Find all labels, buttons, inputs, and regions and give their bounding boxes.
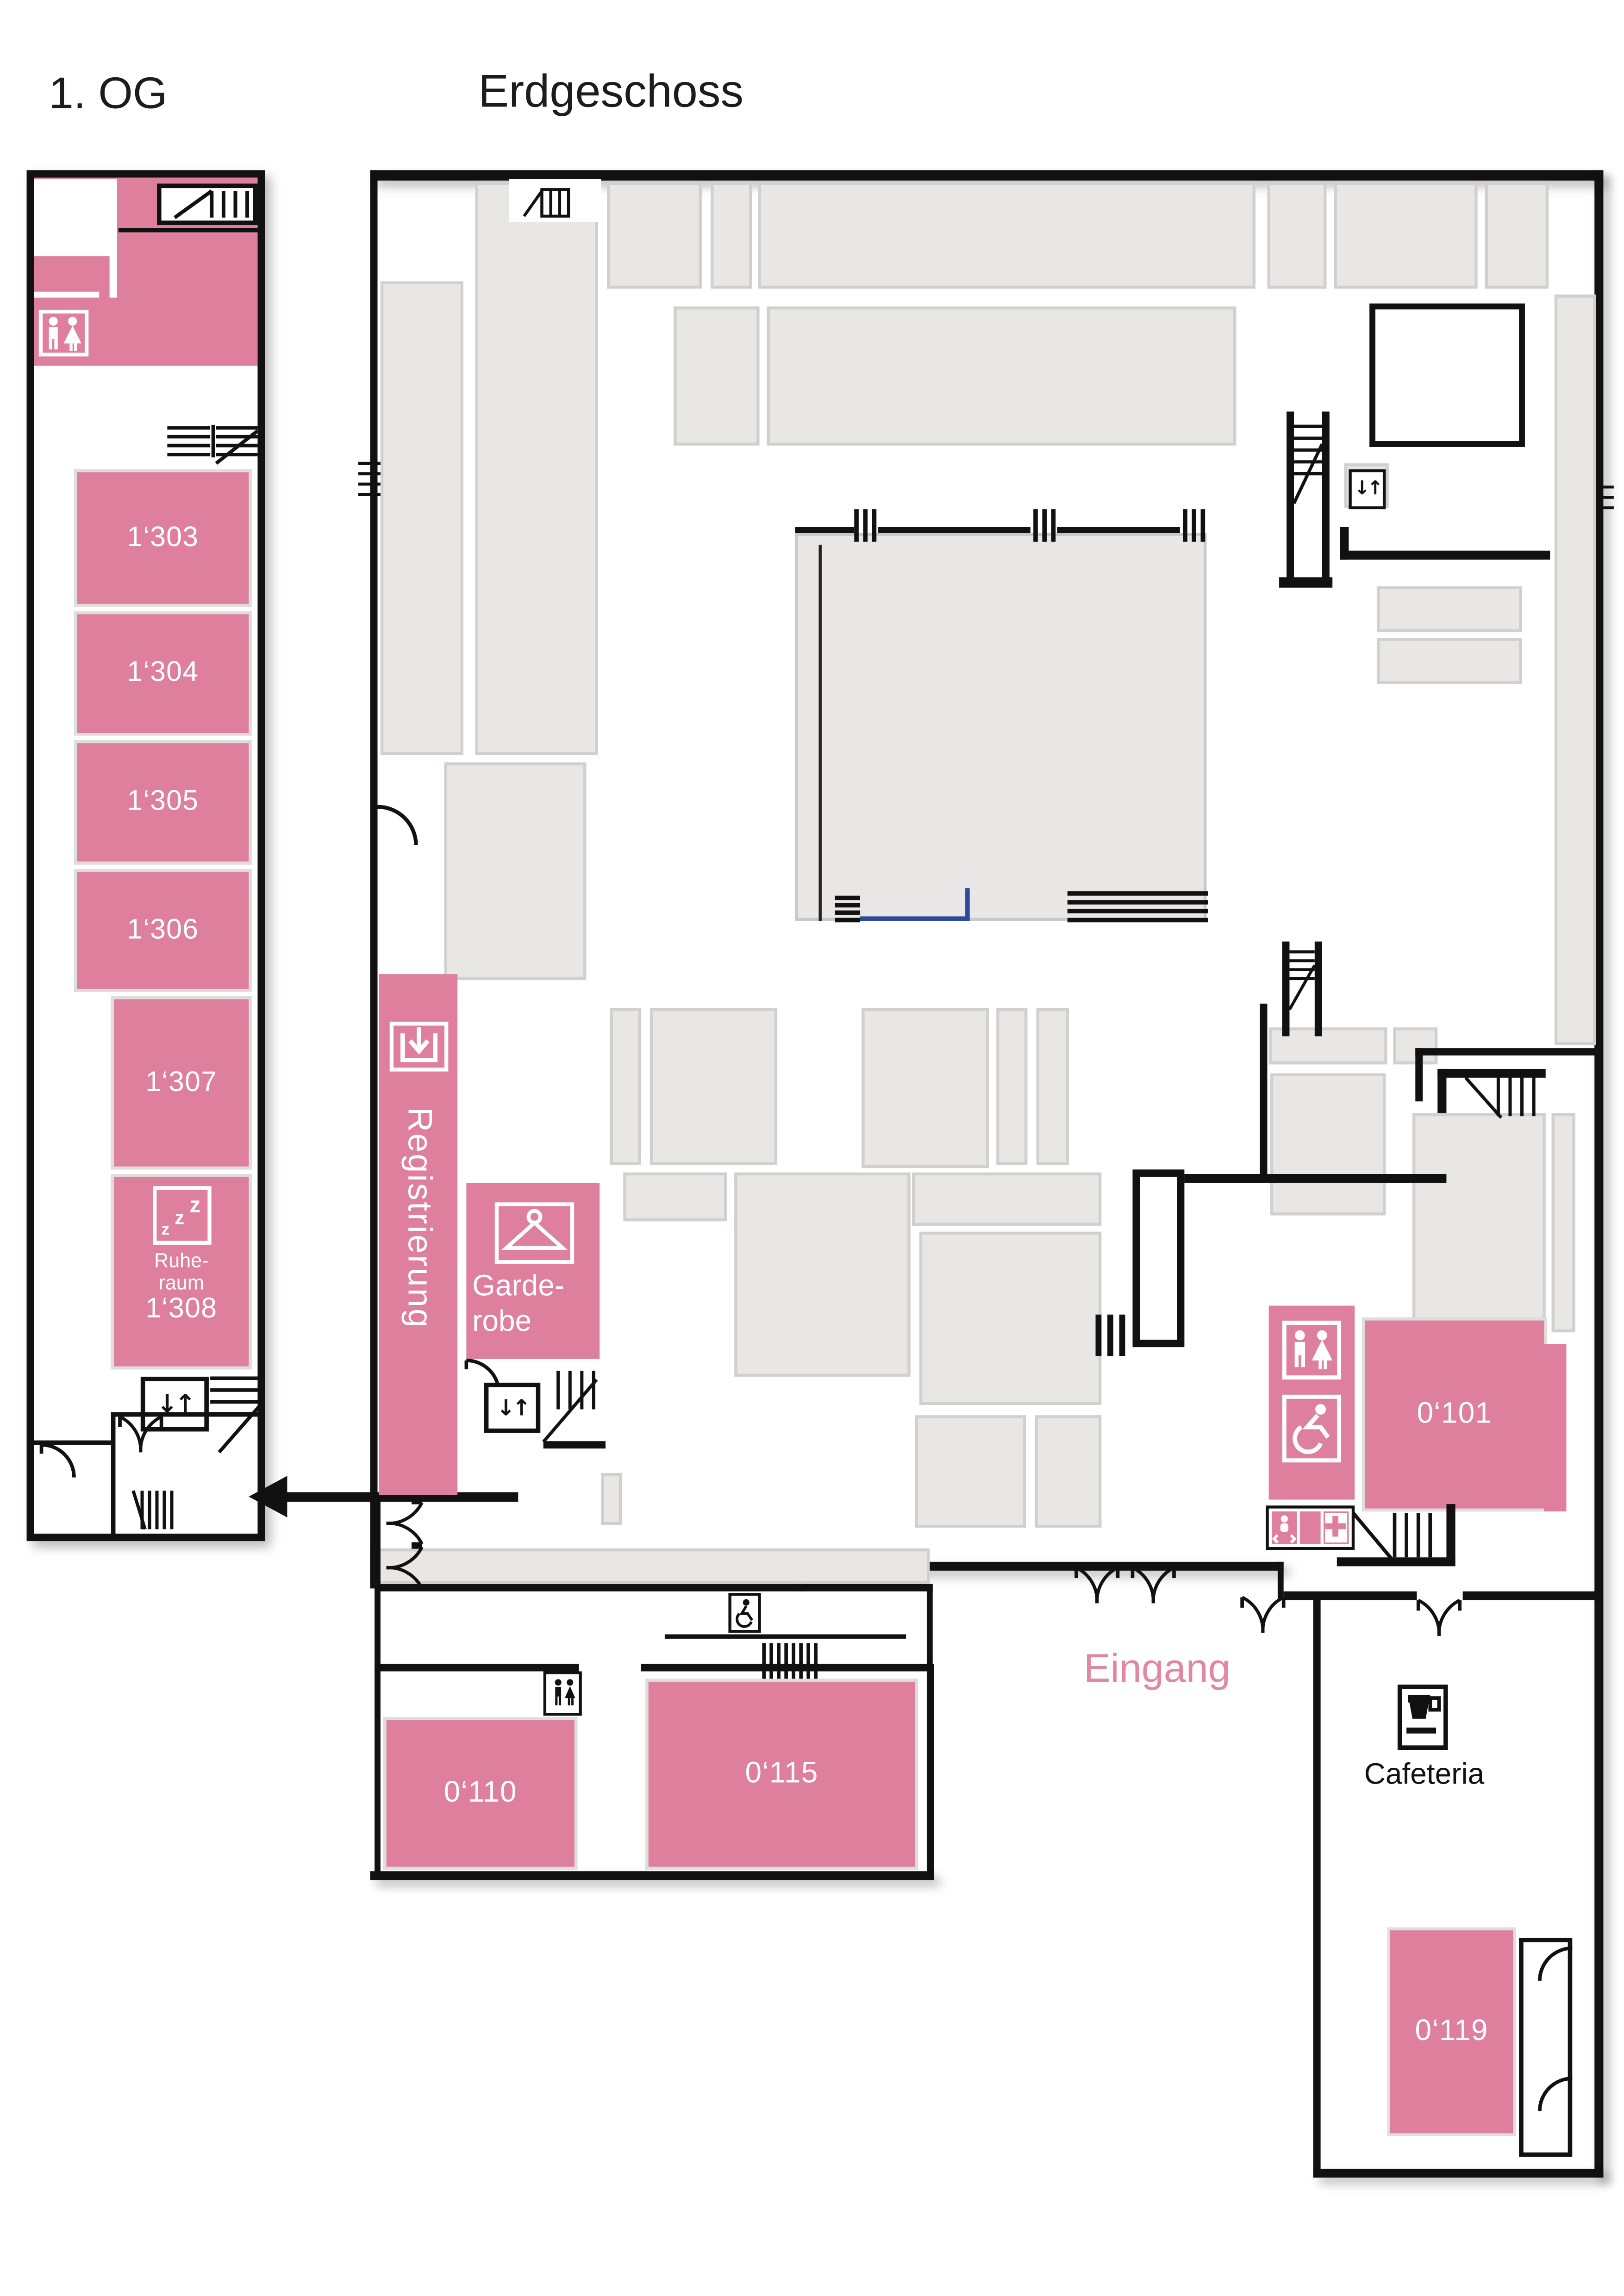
wall	[1437, 1069, 1446, 1113]
door-track	[1042, 509, 1047, 542]
handrail-line	[119, 228, 258, 232]
wall	[375, 1584, 933, 1591]
folding-wall	[1068, 918, 1208, 922]
wall	[1463, 1591, 1602, 1600]
wall	[375, 1500, 381, 1879]
page-title-ground-floor: Erdgeschoss	[478, 65, 743, 119]
wall	[1415, 1048, 1423, 1101]
room-label: 1‘305	[127, 786, 199, 818]
exhibit-area	[623, 1173, 727, 1222]
main-hall	[795, 533, 1206, 921]
wall	[1279, 577, 1332, 587]
exhibit-area	[1270, 1073, 1386, 1216]
stairs-icon	[1294, 420, 1322, 580]
exhibit-area	[610, 1008, 641, 1165]
queue-bar	[1096, 1315, 1102, 1356]
room-name-line2: raum	[159, 1272, 204, 1294]
exhibit-area	[1485, 182, 1549, 288]
stair-shaft-wall	[1282, 942, 1289, 1036]
folding-wall	[835, 903, 860, 907]
wall	[1313, 1594, 1321, 2177]
exhibit-area	[734, 1173, 911, 1377]
exhibit-area	[1555, 294, 1596, 1045]
exhibit-area	[919, 1232, 1101, 1405]
room-label: 0‘115	[745, 1757, 818, 1791]
exhibit-area	[862, 1008, 989, 1168]
door-arc-icon	[377, 807, 416, 845]
wc-icon	[38, 309, 89, 356]
room-0115: 0‘115	[645, 1679, 918, 1870]
info-booth	[1132, 1169, 1184, 1347]
exhibit-area	[1334, 182, 1477, 288]
exhibit-area	[1037, 1008, 1069, 1165]
exhibit-area	[767, 306, 1237, 446]
accessible-icon	[728, 1593, 761, 1633]
corridor-area	[375, 1548, 930, 1584]
wall	[370, 170, 378, 1589]
turnstile-icon	[130, 1488, 183, 1532]
exhibit-area	[1377, 638, 1522, 684]
baby-changing-icon	[1272, 1511, 1297, 1544]
barrier-line	[665, 1635, 906, 1638]
first-aid-icon	[1324, 1511, 1349, 1544]
queue-bar	[1107, 1315, 1113, 1356]
wall	[1446, 1504, 1455, 1566]
stair-shaft-wall	[1287, 412, 1294, 580]
wall	[878, 527, 1030, 533]
wall	[927, 1584, 933, 1672]
registration-icon	[389, 1022, 449, 1072]
exhibit-area	[912, 1173, 1101, 1226]
room-label: 1‘303	[127, 522, 199, 554]
sign-divider	[1300, 1511, 1321, 1544]
stairs-icon	[1289, 948, 1314, 1033]
wall	[1415, 1048, 1599, 1055]
svg-text:z: z	[161, 1220, 169, 1238]
elevator-arrows: ↓↑	[1354, 478, 1380, 500]
room-label: 0‘101	[1417, 1398, 1493, 1432]
room-outline	[1369, 304, 1525, 447]
room-label: 1‘304	[127, 657, 199, 690]
wall-gap	[34, 292, 100, 298]
exhibit-area	[1035, 1415, 1101, 1528]
stairs-icon	[1487, 1078, 1546, 1119]
exhibit-area	[601, 1473, 622, 1525]
door-arc-icon	[1540, 2078, 1572, 2111]
folding-wall	[1068, 900, 1208, 904]
stairs-icon	[1350, 1510, 1448, 1563]
folding-wall	[835, 896, 860, 899]
room-name-line1: Ruhe-	[154, 1249, 209, 1272]
door-track	[1201, 509, 1206, 542]
stairs-icon	[521, 187, 572, 219]
stairs-icon	[167, 422, 257, 466]
wall	[1337, 1557, 1455, 1566]
floorplan-canvas: 1. OG Erdgeschoss 1‘303 1‘304 1‘305 1‘30…	[0, 0, 1624, 2296]
door-track	[1033, 509, 1038, 542]
elevator-arrows: ↓↑	[497, 1395, 528, 1422]
exhibit-area	[996, 1008, 1027, 1165]
door-arc-icon	[1540, 1948, 1572, 1981]
room-1307: 1‘307	[111, 996, 252, 1169]
svg-text:z: z	[189, 1193, 200, 1217]
door-track	[854, 509, 859, 542]
stair-shaft-wall	[1322, 412, 1330, 580]
wall	[795, 527, 854, 533]
room-label: 0‘110	[444, 1777, 517, 1811]
registration-label: Registrierung	[400, 1107, 439, 1329]
door-track	[1192, 509, 1196, 542]
folding-wall	[835, 911, 860, 914]
door-swing-icon	[119, 1416, 163, 1455]
zzz-sleep-icon: z z z	[152, 1186, 211, 1245]
folding-wall	[1068, 891, 1208, 895]
room-cutout	[34, 179, 117, 256]
room-1305: 1‘305	[74, 740, 252, 865]
door-track	[1183, 509, 1187, 542]
exhibit-area	[607, 182, 702, 288]
door-swing-icon	[1241, 1597, 1285, 1636]
garderobe: Garde- robe	[466, 1183, 600, 1359]
wall	[111, 1412, 116, 1537]
room-label: 1‘306	[127, 914, 199, 947]
exhibit-area	[475, 182, 598, 755]
exhibit-area	[1267, 182, 1326, 288]
wall	[1147, 1174, 1446, 1183]
room-label: 1‘307	[145, 1067, 217, 1099]
baby-firstaid-sign	[1266, 1505, 1355, 1550]
exhibit-area	[444, 762, 586, 980]
exhibit-area	[915, 1415, 1026, 1528]
registration-desk: Registrierung	[379, 974, 457, 1495]
cafeteria-label: Cafeteria	[1336, 1759, 1513, 1793]
coffee-icon	[1398, 1685, 1448, 1750]
blue-marker-line	[860, 917, 970, 921]
room-0101: 0‘101	[1362, 1317, 1547, 1511]
room-1303: 1‘303	[74, 469, 252, 607]
wall	[1284, 1591, 1417, 1600]
page-title-first-floor: 1. OG	[49, 69, 168, 120]
exhibit-area	[674, 306, 759, 446]
wc-area	[1269, 1306, 1355, 1500]
exhibit-area	[1552, 1113, 1575, 1332]
room-1304: 1‘304	[74, 611, 252, 736]
elevator-icon: ↓↑	[484, 1383, 541, 1433]
elevator-icon: ↓↑	[1349, 469, 1386, 509]
folding-wall	[835, 918, 860, 922]
exhibit-area	[381, 281, 463, 755]
door-swing-icon	[383, 1546, 422, 1590]
exhibit-area	[650, 1008, 777, 1165]
garderobe-label-line1: Garde-	[472, 1269, 564, 1304]
door-swing-icon	[1131, 1568, 1175, 1606]
exhibit-area	[1412, 1113, 1546, 1325]
stair-shaft-wall	[1315, 942, 1322, 1036]
blue-marker-line	[965, 888, 970, 921]
exhibit-area	[758, 182, 1255, 288]
wall	[370, 1871, 934, 1880]
exhibit-area	[711, 182, 752, 288]
wall	[111, 1412, 261, 1417]
room-0110: 0‘110	[383, 1717, 577, 1870]
eingang-label: Eingang	[1084, 1646, 1230, 1692]
stairs-icon	[157, 184, 257, 225]
garderobe-label-line2: robe	[472, 1304, 564, 1340]
partition-line	[818, 545, 821, 921]
wall	[1057, 527, 1180, 533]
wc-icon	[1282, 1321, 1341, 1380]
door-track	[1051, 509, 1056, 542]
coat-hanger-icon	[494, 1202, 575, 1264]
wall-gap	[110, 255, 117, 298]
room-number: 1‘308	[145, 1294, 217, 1326]
wall	[1278, 1562, 1284, 1600]
room-0119: 0‘119	[1387, 1928, 1516, 2136]
room-1306: 1‘306	[74, 869, 252, 992]
floorplan-page: 1. OG Erdgeschoss 1‘303 1‘304 1‘305 1‘30…	[0, 0, 1624, 2296]
wall	[927, 1664, 934, 1880]
room-label: 0‘119	[1415, 2015, 1488, 2049]
exhibit-area	[1377, 586, 1522, 632]
wall	[1260, 1004, 1267, 1178]
door-arc-icon	[42, 1445, 74, 1477]
folding-wall	[1068, 909, 1208, 913]
wall	[1340, 551, 1550, 560]
wc-icon	[543, 1672, 582, 1716]
wall	[1437, 1069, 1545, 1078]
door-swing-icon	[1075, 1568, 1119, 1606]
queue-bar	[1119, 1315, 1125, 1356]
wall	[1313, 2169, 1604, 2177]
stairs-icon	[543, 1368, 609, 1451]
room-1308-ruheraum: z z z Ruhe- raum 1‘308	[111, 1174, 252, 1369]
door-swing-icon	[1417, 1600, 1461, 1639]
svg-text:z: z	[174, 1207, 184, 1229]
wall	[375, 1664, 579, 1672]
wheelchair-icon	[1282, 1395, 1341, 1463]
door-track	[872, 509, 877, 542]
room-0101-extension	[1544, 1344, 1567, 1511]
door-swing-icon	[383, 1501, 422, 1546]
door-track	[863, 509, 868, 542]
